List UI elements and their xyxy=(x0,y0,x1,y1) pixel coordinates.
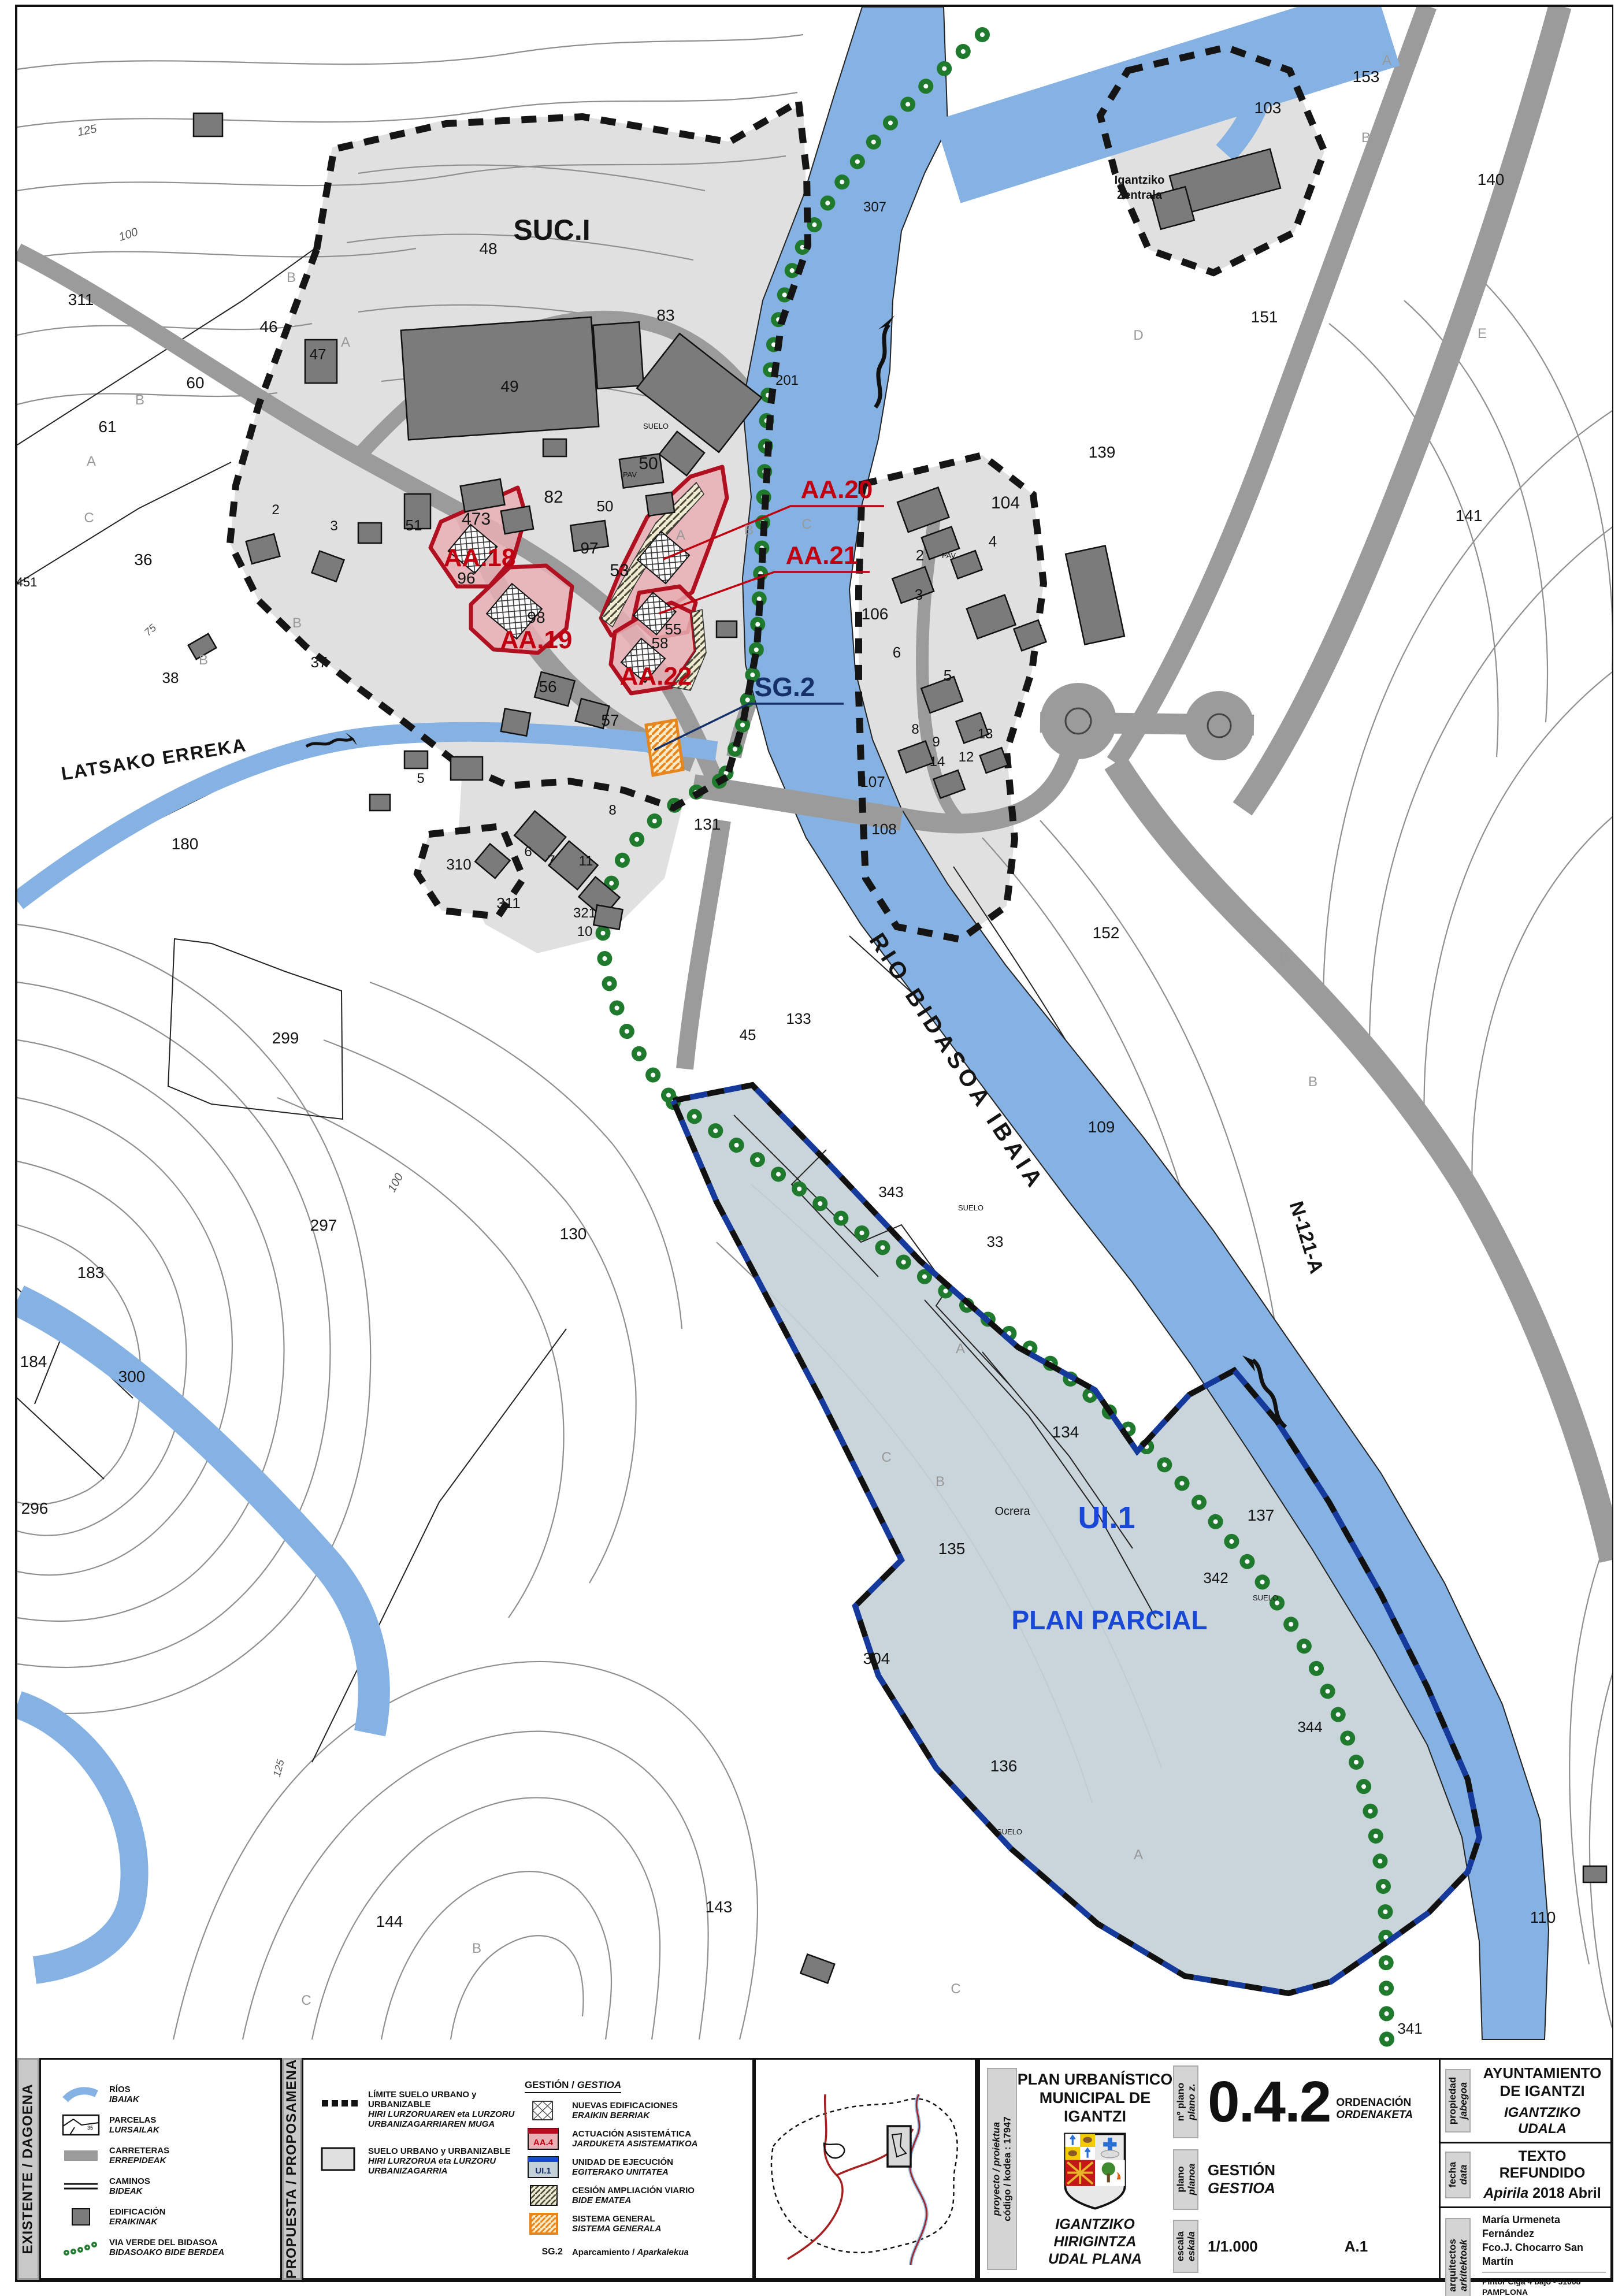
project-code-bar: proyecto / proiektua código / kodea : 17… xyxy=(987,2068,1017,2270)
map-label: 8 xyxy=(911,722,919,737)
map-label: AA.20 xyxy=(801,475,873,504)
legend-item-aa4: AA.4 ACTUACIÓN ASISTEMÁTICA JARDUKETA AS… xyxy=(525,2127,752,2150)
map-label: Zentrala xyxy=(1117,189,1163,202)
sg2-parcel xyxy=(646,720,683,775)
legend-label: PARCELAS xyxy=(109,2115,156,2125)
plan-subtitle-1: IGANTZIKO HIRIGINTZA xyxy=(1053,2216,1136,2250)
plan-number-column: nº planoplano z. 0.4.2 ORDENACIÓN ORDENA… xyxy=(1173,2060,1439,2278)
map-label: 36 xyxy=(134,551,152,569)
fecha-bar-es: fecha xyxy=(1447,2162,1458,2187)
fecha-value-2b: 2018 Abril xyxy=(1528,2185,1601,2201)
propiedad-row: propiedadjabegoa AYUNTAMIENTO DE IGANTZI… xyxy=(1441,2060,1610,2143)
map-label: 343 xyxy=(878,1183,903,1201)
paths-legend-icon xyxy=(62,2175,100,2198)
map-label: 56 xyxy=(539,678,556,696)
map-label: 96 xyxy=(457,569,475,587)
legend-proposed-panel: LÍMITE SUELO URBANO y URBANIZABLE HIRI L… xyxy=(302,2058,754,2280)
escala-bar-es: escala xyxy=(1175,2231,1186,2261)
fecha-value-1: TEXTO REFUNDIDO xyxy=(1479,2148,1606,2182)
existing-section-bar: EXISTENTE / DAGOENA xyxy=(17,2058,39,2280)
legend-label: NUEVAS EDIFICACIONES xyxy=(572,2101,678,2111)
map-label: 180 xyxy=(172,835,199,853)
plan-title-1: PLAN URBANÍSTICO xyxy=(1018,2071,1173,2088)
map-label: C xyxy=(301,1993,311,2008)
legend-label-eu: ERAIKINAK xyxy=(109,2217,157,2227)
map-label: 48 xyxy=(479,240,497,258)
map-label: 135 xyxy=(938,1540,966,1558)
map-label: Igantziko xyxy=(1115,174,1165,187)
plan-title-column: PLAN URBANÍSTICO MUNICIPAL DE IGANTZI xyxy=(1017,2060,1173,2278)
ui-zone-legend-icon: UI.1 xyxy=(525,2156,563,2179)
legend-label-eu: LURSAILAK xyxy=(109,2125,159,2135)
map-label: 6 xyxy=(524,844,532,860)
legend-item-cesion: CESIÓN AMPLIACIÓN VIARIO BIDE EMATEA xyxy=(525,2184,752,2207)
new-buildings-legend-icon xyxy=(525,2099,563,2122)
map-label: 300 xyxy=(118,1368,146,1385)
sg2-code: SG.2 xyxy=(525,2241,563,2264)
map-label: 50 xyxy=(639,454,658,473)
map-label: 46 xyxy=(259,318,277,336)
map-label: AA.22 xyxy=(620,662,692,690)
map-label: 3 xyxy=(330,518,337,534)
map-label: 297 xyxy=(310,1216,337,1234)
legend-label-eu: Aparkalekua xyxy=(637,2247,688,2257)
map-label: PAV xyxy=(942,551,956,560)
legend-item-rios: RÍOS IBAIAK xyxy=(62,2083,280,2106)
igantzi-coat-of-arms xyxy=(1061,2130,1129,2212)
map-label: 11 xyxy=(579,853,593,869)
map-label: 151 xyxy=(1251,308,1278,326)
map-label: 53 xyxy=(610,561,629,580)
plan-subtitle-2: UDAL PLANA xyxy=(1048,2251,1142,2267)
map-label: 57 xyxy=(601,711,619,729)
plan-number-sub-es: ORDENACIÓN xyxy=(1336,2097,1411,2109)
map-label: 137 xyxy=(1248,1506,1275,1524)
legend-item-sg2: SG.2 Aparcamiento / Aparkalekua xyxy=(525,2241,752,2264)
plan-title-2: MUNICIPAL DE IGANTZI xyxy=(1040,2089,1151,2125)
map-label: B xyxy=(472,1941,481,1956)
plan-no-bar-eu: plano z. xyxy=(1186,2083,1197,2122)
map-label: SUELO xyxy=(997,1827,1022,1836)
map-label: 10 xyxy=(577,924,593,939)
legend-label: SISTEMA GENERAL xyxy=(572,2214,655,2224)
map-label: 38 xyxy=(162,669,179,686)
map-label: 107 xyxy=(860,773,885,790)
map-label: 103 xyxy=(1254,99,1282,117)
propiedad-bar: propiedadjabegoa xyxy=(1445,2069,1471,2133)
river-legend-icon xyxy=(62,2083,100,2106)
proposed-bar-label: PROPUESTA / PROPOSAMENA xyxy=(284,2059,300,2279)
map-label: B xyxy=(1308,1074,1317,1090)
inset-plan-extent xyxy=(888,2126,911,2167)
legend-label: CESIÓN AMPLIACIÓN VIARIO xyxy=(572,2186,695,2195)
map-label: 130 xyxy=(560,1225,587,1243)
greenway-legend-icon xyxy=(62,2236,100,2259)
map-label: 50 xyxy=(597,497,614,515)
legend-label-eu: JARDUKETA ASISTEMATIKOA xyxy=(572,2139,698,2149)
map-label: A xyxy=(341,335,350,350)
legend-item-parcelas: 35 PARCELAS LURSAILAK xyxy=(62,2113,280,2137)
legend-label: EDIFICACIÓN xyxy=(109,2207,166,2217)
map-label: B xyxy=(199,652,208,668)
legend-item-carreteras: CARRETERAS ERREPIDEAK xyxy=(62,2144,280,2167)
map-label: 342 xyxy=(1203,1569,1228,1587)
map-label: 37 xyxy=(311,653,328,671)
map-label: 144 xyxy=(376,1912,403,1930)
fecha-value-2a: Apirila xyxy=(1483,2185,1528,2201)
legend-item-sistema-general: SISTEMA GENERAL SISTEMA GENERALA xyxy=(525,2212,752,2235)
plan-map: SUC.ISUELOAA.18AA.19AA.20AA.21AA.22SG.2U… xyxy=(17,7,1612,2058)
map-label: 152 xyxy=(1093,924,1120,942)
map-label: 304 xyxy=(863,1649,890,1667)
arquitectos-row: arquitectosarkitektoak María Urmeneta Fe… xyxy=(1441,2208,1610,2296)
map-label: UI.1 xyxy=(1078,1500,1135,1535)
building-legend-icon xyxy=(62,2205,100,2228)
map-label: B xyxy=(1279,950,1289,965)
map-label: 321 xyxy=(573,905,596,921)
map-label: 49 xyxy=(500,377,518,395)
map-label: Ocrera xyxy=(994,1505,1030,1518)
map-label: B xyxy=(744,522,754,538)
escala-value: 1/1.000 xyxy=(1208,2238,1258,2256)
legend-label-eu: HIRI LURZORUA eta LURZORU xyxy=(368,2156,496,2166)
legend-label-eu: EGITERAKO UNITATEA xyxy=(572,2167,669,2177)
map-label: 451 xyxy=(17,575,37,589)
map-label: B xyxy=(292,615,302,631)
map-label: 108 xyxy=(871,820,896,838)
map-label: 83 xyxy=(656,306,674,324)
plano-value-eu: GESTIOA xyxy=(1208,2179,1275,2197)
legend-label: ACTUACIÓN ASISTEMÁTICA xyxy=(572,2129,691,2139)
map-label: 47 xyxy=(310,345,326,363)
map-label: 341 xyxy=(1397,2020,1422,2037)
map-label: 8 xyxy=(608,803,616,818)
map-label: B xyxy=(287,270,296,285)
plano-value-es: GESTIÓN xyxy=(1208,2161,1275,2179)
map-label: 4 xyxy=(989,533,997,550)
arquitectos-bar: arquitectosarkitektoak xyxy=(1445,2218,1471,2296)
legend-label: LÍMITE SUELO URBANO y URBANIZABLE xyxy=(368,2090,477,2109)
propiedad-value-1: AYUNTAMIENTO DE IGANTZI xyxy=(1479,2064,1606,2100)
map-label: 307 xyxy=(863,199,886,215)
legend-label: CAMINOS xyxy=(109,2176,150,2186)
map-label: A xyxy=(1134,1847,1143,1863)
legend-label: VIA VERDE DEL BIDASOA xyxy=(109,2238,218,2247)
map-label: 5 xyxy=(417,771,424,786)
map-label: 60 xyxy=(186,374,204,392)
fecha-row: fechadata TEXTO REFUNDIDO Apirila 2018 A… xyxy=(1441,2143,1610,2208)
map-label: 473 xyxy=(462,510,491,529)
map-label: PLAN PARCIAL xyxy=(1011,1605,1207,1635)
legend-item-limite: LÍMITE SUELO URBANO y URBANIZABLE HIRI L… xyxy=(321,2090,519,2129)
map-label: A xyxy=(87,454,96,469)
map-label: 310 xyxy=(446,856,471,873)
svg-text:35: 35 xyxy=(87,2125,93,2131)
map-label: 153 xyxy=(1353,68,1380,86)
arq-bar-es: arquitectos xyxy=(1447,2239,1458,2292)
urban-limit-legend-icon xyxy=(321,2092,359,2115)
map-label: 133 xyxy=(786,1010,811,1027)
legend-label-eu: SISTEMA GENERALA xyxy=(572,2224,661,2234)
legend-item-ui1: UI.1 UNIDAD DE EJECUCIÓN EGITERAKO UNITA… xyxy=(525,2156,752,2179)
map-label: 141 xyxy=(1456,507,1483,525)
svg-text:UI.1: UI.1 xyxy=(535,2166,551,2176)
map-label: 183 xyxy=(77,1264,105,1281)
legend-label-eu: URBANIZAGARRIAREN MUGA xyxy=(368,2119,495,2129)
legend-label: SUELO URBANO y URBANIZABLE xyxy=(368,2146,511,2156)
map-label: 2 xyxy=(272,502,279,518)
map-area: SUC.ISUELOAA.18AA.19AA.20AA.21AA.22SG.2U… xyxy=(17,7,1612,2058)
plano-bar-es: plano xyxy=(1175,2164,1186,2195)
map-label: 106 xyxy=(862,605,889,623)
map-label: E xyxy=(1478,326,1487,341)
map-label: 296 xyxy=(21,1499,49,1517)
aa-zone-legend-icon: AA.4 xyxy=(525,2127,563,2150)
propiedad-bar-eu: jabegoa xyxy=(1458,2077,1469,2124)
map-label: AA.18 xyxy=(444,544,516,572)
map-label: 98 xyxy=(527,608,545,626)
existing-bar-label: EXISTENTE / DAGOENA xyxy=(20,2083,36,2254)
arq-bar-eu: arkitektoak xyxy=(1458,2239,1469,2292)
project-bar-line2: código / kodea : 17947 xyxy=(1002,2116,1013,2221)
architect-name-2: Fco.J. Chocarro San Martín xyxy=(1482,2241,1606,2268)
map-label: SG.2 xyxy=(755,672,815,702)
plan-no-bar: nº planoplano z. xyxy=(1173,2065,1198,2138)
map-label: C xyxy=(881,1450,891,1465)
map-label: PAV xyxy=(623,470,637,479)
map-label: 344 xyxy=(1297,1718,1322,1736)
map-label: B xyxy=(1361,130,1371,146)
legend-label: UNIDAD DE EJECUCIÓN xyxy=(572,2157,673,2167)
map-label: 12 xyxy=(959,749,974,765)
architect-address: Pintor Ciga 4 bajo - 31008 PAMPLONA xyxy=(1482,2276,1606,2296)
plan-number-sub-eu: ORDENAKETA xyxy=(1336,2109,1413,2121)
legend-label: Aparcamiento / xyxy=(572,2247,637,2257)
sistema-general-legend-icon xyxy=(525,2212,563,2235)
propiedad-bar-es: propiedad xyxy=(1447,2077,1458,2124)
map-label: A xyxy=(956,1341,965,1357)
legend-label-eu: ERREPIDEAK xyxy=(109,2156,166,2165)
map-label: 136 xyxy=(990,1757,1018,1775)
map-label: 131 xyxy=(694,815,721,833)
map-label: 3 xyxy=(915,586,923,603)
map-label: 311 xyxy=(68,291,94,309)
map-label: 299 xyxy=(272,1029,299,1047)
map-label: 61 xyxy=(98,418,116,436)
plano-bar-eu: planoa xyxy=(1186,2164,1197,2195)
map-label: SUELO xyxy=(643,422,669,430)
map-label: 2 xyxy=(916,547,924,564)
legend-label-eu: ERAIKIN BERRIAK xyxy=(572,2111,649,2120)
plano-bar: planoplanoa xyxy=(1173,2149,1198,2210)
legend-item-caminos: CAMINOS BIDEAK xyxy=(62,2175,280,2198)
legend-label-eu: BIDASOAKO BIDE BERDEA xyxy=(109,2247,224,2257)
legend-label-eu: URBANIZAGARRIA xyxy=(368,2166,448,2176)
proposed-section-bar: PROPUESTA / PROPOSAMENA xyxy=(282,2058,302,2280)
map-label: 9 xyxy=(932,734,940,750)
legend-label-eu: BIDEAK xyxy=(109,2186,143,2196)
legend-item-suelo-urbano: SUELO URBANO y URBANIZABLE HIRI LURZORUA… xyxy=(321,2146,519,2176)
gestion-header: GESTIÓN / GESTIOA xyxy=(525,2079,621,2093)
map-label: 13 xyxy=(978,726,993,742)
escala-bar: escalaeskala xyxy=(1173,2220,1198,2273)
legend-label-eu: BIDE EMATEA xyxy=(572,2195,631,2205)
locator-inset-map xyxy=(756,2060,975,2278)
plan-number: 0.4.2 xyxy=(1208,2076,1330,2128)
propiedad-value-2: IGANTZIKO UDALA xyxy=(1479,2105,1606,2137)
map-label: C xyxy=(84,510,94,526)
map-label: 51 xyxy=(406,517,422,534)
cesion-legend-icon xyxy=(525,2184,563,2207)
roads-legend-icon xyxy=(62,2144,100,2167)
map-label: 45 xyxy=(740,1026,756,1043)
legend-existing-panel: RÍOS IBAIAK 35 PARCELAS LURSAILAK CARRET… xyxy=(39,2058,282,2280)
map-label: 134 xyxy=(1052,1423,1079,1441)
map-label: A xyxy=(676,527,685,543)
bottom-strip: EXISTENTE / DAGOENA RÍOS IBAIAK 35 PARCE… xyxy=(17,2058,1612,2280)
divider xyxy=(1482,2272,1606,2273)
title-block: proyecto / proiektua código / kodea : 17… xyxy=(977,2058,1612,2280)
legend-label-eu: HIRI LURZORUAREN eta LURZORU xyxy=(368,2109,514,2119)
map-label: 201 xyxy=(775,373,799,388)
map-label: 82 xyxy=(544,488,563,507)
map-label: C xyxy=(801,517,811,532)
map-label: AA.21 xyxy=(786,541,858,570)
map-label: AA.19 xyxy=(500,626,573,654)
parcels-legend-icon: 35 xyxy=(62,2113,100,2137)
plan-no-bar-es: nº plano xyxy=(1175,2083,1186,2122)
map-label: 6 xyxy=(893,644,901,661)
architect-name-1: María Urmeneta Fernández xyxy=(1482,2213,1606,2241)
map-label: 58 xyxy=(652,634,669,652)
project-bar-line1: proyecto / proiektua xyxy=(991,2116,1002,2221)
map-label: B xyxy=(936,1474,945,1489)
map-label: 97 xyxy=(580,539,598,557)
legend-label: RÍOS xyxy=(109,2085,131,2094)
plan-sheet: SUC.ISUELOAA.18AA.19AA.20AA.21AA.22SG.2U… xyxy=(0,0,1622,2296)
map-label: 33 xyxy=(987,1233,1004,1250)
map-label: SUC.I xyxy=(513,214,590,246)
map-label: 184 xyxy=(20,1353,47,1370)
map-label: 14 xyxy=(930,754,945,770)
urban-land-legend-icon xyxy=(321,2148,359,2171)
map-label: 104 xyxy=(991,493,1020,512)
map-label: 143 xyxy=(706,1898,733,1916)
map-label: 311 xyxy=(496,894,520,912)
map-label: D xyxy=(1133,328,1143,343)
map-label: C xyxy=(951,1981,960,1997)
map-label: 110 xyxy=(1530,1908,1556,1926)
map-label: A xyxy=(1382,53,1391,68)
locator-inset-panel xyxy=(754,2058,977,2280)
legend-label-eu: IBAIAK xyxy=(109,2094,139,2104)
sheet-code: A.1 xyxy=(1345,2238,1368,2256)
legend-item-viaverde: VIA VERDE DEL BIDASOA BIDASOAKO BIDE BER… xyxy=(62,2236,280,2259)
map-label: 7 xyxy=(547,853,555,868)
legend-item-edificacion: EDIFICACIÓN ERAIKINAK xyxy=(62,2205,280,2228)
map-label: B xyxy=(135,392,144,408)
map-label: 5 xyxy=(944,667,952,684)
owner-info-column: propiedadjabegoa AYUNTAMIENTO DE IGANTZI… xyxy=(1439,2060,1610,2278)
escala-bar-eu: eskala xyxy=(1186,2231,1197,2261)
map-label: SUELO xyxy=(1253,1593,1278,1602)
map-label: 139 xyxy=(1089,443,1116,461)
map-label: 109 xyxy=(1088,1118,1115,1136)
legend-item-nuevas: NUEVAS EDIFICACIONES ERAIKIN BERRIAK xyxy=(525,2099,752,2122)
fecha-bar: fechadata xyxy=(1445,2152,1471,2199)
svg-text:AA.4: AA.4 xyxy=(533,2138,554,2148)
map-label: 140 xyxy=(1478,170,1505,188)
fecha-bar-eu: data xyxy=(1458,2162,1469,2187)
map-label: SUELO xyxy=(958,1203,983,1212)
